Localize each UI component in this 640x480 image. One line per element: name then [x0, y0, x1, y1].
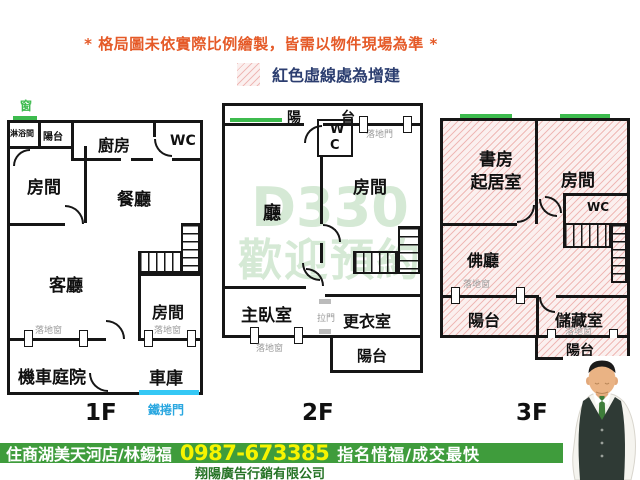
wall [131, 158, 153, 161]
window-marker [144, 330, 153, 347]
floor-label-3f: 3F [516, 400, 548, 426]
addition-hatch-swatch [237, 63, 260, 86]
legend: 紅色虛線處為增建 [237, 62, 400, 86]
green-window-line [230, 118, 282, 122]
footer-contact: 住商湖美天河店/林錫福 0987-673385 指名惜福/成交最快 [6, 442, 480, 464]
window-marker [403, 116, 412, 133]
stairs [181, 223, 200, 273]
door-arc [89, 373, 108, 392]
wall [325, 294, 420, 297]
annotation-patio-door: 落地門 [366, 127, 393, 140]
company-name: 翔陽廣告行銷有限公司 [0, 463, 520, 480]
wall [71, 158, 121, 161]
window-marker [451, 287, 460, 304]
annotation-window-2f: 落地窗 [256, 341, 283, 354]
phone-number: 0987-673385 [180, 441, 329, 465]
window-icon: 窗 [20, 97, 32, 114]
annotation-roller-door: 鐵捲門 [148, 401, 184, 418]
room-label-room: 房間 [353, 173, 387, 198]
window-marker [79, 330, 88, 347]
wall [536, 295, 539, 335]
room-label-dining: 餐廳 [117, 185, 151, 210]
wall [138, 273, 200, 276]
green-window-line [13, 116, 37, 120]
roller-door-line [139, 390, 199, 395]
wall [84, 146, 87, 223]
stairs [398, 226, 420, 274]
window-marker [294, 327, 303, 344]
annotation-sliding-door: 拉門 [317, 311, 335, 324]
green-window-line [460, 114, 512, 118]
floorplan-2f: 陽台 落地門 W C 廳 房間 主臥室 拉門 更衣室 [222, 103, 423, 338]
wc-box: W C [317, 119, 353, 157]
floor-label-1f: 1F [85, 400, 117, 426]
wall [138, 273, 141, 338]
annotation-window-right: 落地窗 [565, 324, 592, 337]
stairs [611, 223, 627, 283]
room-label-study-line2: 起居室 [456, 172, 536, 195]
room-label-room-left: 房間 [27, 173, 61, 198]
door-arc [323, 224, 341, 242]
room-label-closet: 更衣室 [343, 308, 391, 332]
floorplan-3f: 書房 起居室 房間 WC 佛廳 落地窗 陽台 儲藏室 落地窗 [440, 118, 630, 338]
green-window-line [560, 114, 610, 118]
balcony-extension-2f: 陽台 [330, 338, 423, 373]
stairs [353, 251, 398, 274]
wall [225, 286, 306, 289]
wall [10, 223, 65, 226]
room-label-master: 主臥室 [241, 301, 292, 326]
wall [71, 123, 74, 158]
room-label-living: 客廳 [49, 271, 83, 296]
room-label-wc-w: W [330, 122, 344, 137]
room-label-buddha-hall: 佛廳 [467, 247, 499, 271]
sliding-door-marker [319, 329, 331, 334]
door-arc [106, 320, 125, 339]
annotation-window-right: 落地窗 [154, 323, 181, 336]
door-arc [13, 149, 30, 166]
wall [556, 295, 627, 298]
room-label-yard: 機車庭院 [18, 363, 86, 388]
window-marker [24, 330, 33, 347]
agent-photo-illustration [563, 356, 640, 480]
agent-photo [563, 356, 640, 480]
legend-text: 紅色虛線處為增建 [272, 62, 400, 86]
door-arc [517, 205, 535, 223]
room-label-wc-c: C [330, 138, 340, 153]
door-arc [65, 205, 84, 224]
window-marker [516, 287, 525, 304]
floor-label-2f: 2F [302, 400, 334, 426]
door-arc [545, 196, 562, 213]
room-label-garage: 車庫 [149, 364, 183, 389]
room-label-study-line1: 書房 [456, 149, 536, 172]
disclaimer-text: * 格局圖未依實際比例繪製，皆需以物件現場為準 * [0, 33, 522, 54]
room-label-room: 房間 [561, 166, 595, 191]
stairs [138, 251, 183, 273]
window-marker [187, 330, 196, 347]
wall [172, 158, 200, 161]
room-label-shower: 淋浴間 [10, 128, 34, 139]
wall [563, 193, 627, 196]
wall [443, 223, 517, 226]
room-label-balcony-bottom: 陽台 [357, 345, 387, 366]
annotation-window-left: 落地窗 [463, 277, 490, 290]
room-label-kitchen: 廚房 [98, 132, 130, 156]
sliding-door-marker [319, 299, 331, 304]
room-label-study: 書房 起居室 [456, 149, 536, 195]
stairs [563, 223, 611, 248]
room-label-balcony: 陽台 [43, 128, 63, 143]
room-label-wc: WC [170, 133, 196, 149]
wall [10, 146, 71, 149]
slogan-text: 指名惜福/成交最快 [337, 441, 480, 465]
door-arc [306, 268, 324, 286]
flyer-page: * 格局圖未依實際比例繪製，皆需以物件現場為準 * 紅色虛線處為增建 D330 … [0, 0, 640, 480]
window-marker [359, 116, 368, 133]
wall [153, 123, 156, 137]
wall [535, 191, 538, 224]
agency-name: 住商湖美天河店/林錫福 [6, 441, 172, 465]
wall [320, 157, 323, 224]
annotation-window-left: 落地窗 [35, 323, 62, 336]
wall [320, 243, 323, 263]
room-label-room-bottom: 房間 [152, 299, 184, 323]
door-arc [539, 297, 555, 313]
floorplan-1f: 淋浴間 陽台 廚房 WC 房間 餐廳 客廳 房間 落地窗 落地窗 [7, 120, 203, 395]
wall [563, 193, 566, 223]
room-label-hall: 廳 [263, 199, 281, 225]
wall [38, 123, 41, 146]
room-label-wc: WC [587, 200, 609, 214]
room-label-balcony-left: 陽台 [468, 307, 500, 331]
